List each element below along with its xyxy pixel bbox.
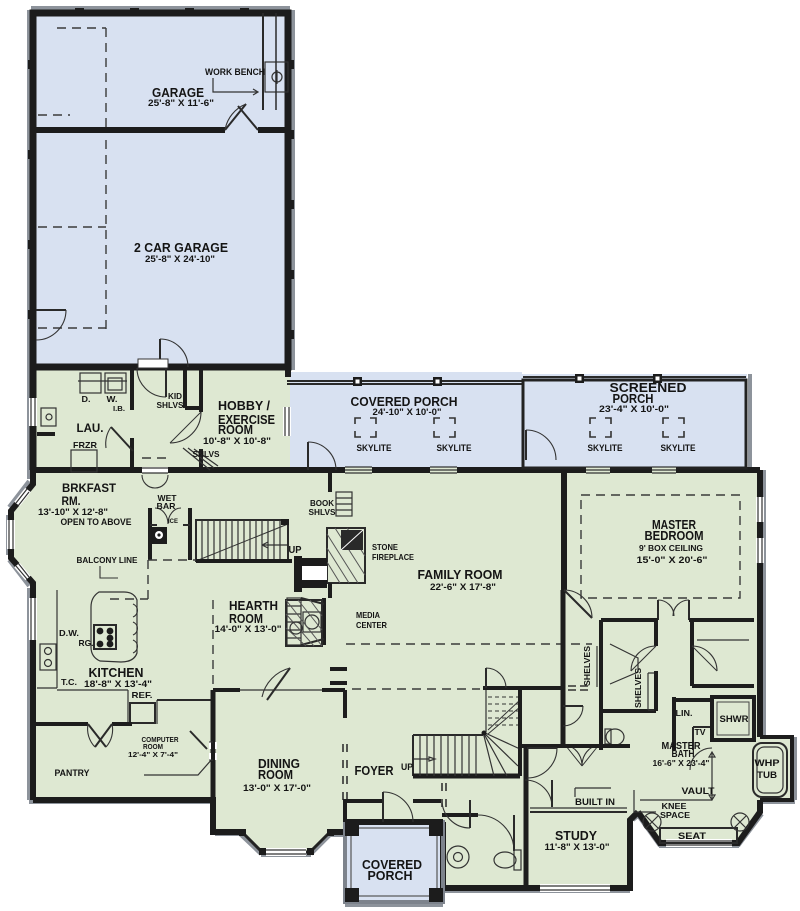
svg-text:OPEN TO ABOVE: OPEN TO ABOVE (61, 517, 132, 528)
svg-text:COMPUTER: COMPUTER (142, 737, 179, 744)
svg-text:KITCHEN: KITCHEN (89, 666, 144, 680)
svg-text:UP: UP (289, 545, 302, 556)
svg-text:LAU.: LAU. (77, 421, 104, 435)
svg-text:FAMILY ROOM: FAMILY ROOM (418, 568, 503, 582)
svg-text:ICE: ICE (168, 519, 178, 525)
svg-text:10'-8" X 10'-8": 10'-8" X 10'-8" (203, 436, 271, 447)
svg-text:D.: D. (82, 394, 91, 404)
svg-text:HEARTH: HEARTH (229, 599, 278, 613)
svg-text:SHLVS: SHLVS (309, 507, 336, 517)
svg-text:SHLVS: SHLVS (157, 400, 184, 410)
svg-text:SKYLITE: SKYLITE (661, 443, 696, 454)
svg-text:REF.: REF. (132, 690, 153, 700)
svg-text:TV: TV (695, 728, 707, 737)
svg-text:VAULT: VAULT (682, 786, 715, 797)
svg-text:CENTER: CENTER (356, 620, 387, 630)
svg-text:SHLVS: SHLVS (193, 449, 220, 459)
svg-text:LIN.: LIN. (676, 708, 693, 718)
svg-text:SHELVES: SHELVES (633, 668, 643, 708)
svg-text:11'-8" X 13'-0": 11'-8" X 13'-0" (545, 842, 610, 853)
svg-text:I.B.: I.B. (113, 406, 125, 413)
svg-text:13'-0" X 17'-0": 13'-0" X 17'-0" (243, 783, 311, 794)
svg-text:WHP: WHP (755, 758, 781, 769)
svg-text:SHWR: SHWR (720, 714, 749, 725)
svg-text:MEDIA: MEDIA (356, 610, 380, 620)
svg-text:12'-4" X 7'-4": 12'-4" X 7'-4" (128, 752, 178, 759)
svg-text:FRZR: FRZR (73, 440, 97, 450)
svg-text:SEAT: SEAT (678, 831, 706, 842)
svg-text:BATH: BATH (672, 749, 695, 760)
svg-text:BALCONY LINE: BALCONY LINE (77, 555, 138, 565)
svg-text:RM.: RM. (62, 494, 81, 508)
svg-text:18'-8" X 13'-4": 18'-8" X 13'-4" (84, 679, 152, 690)
svg-text:24'-10" X 10'-0": 24'-10" X 10'-0" (373, 407, 442, 418)
svg-text:HOBBY /: HOBBY / (218, 399, 271, 413)
svg-text:ROOM: ROOM (143, 744, 163, 751)
svg-text:2 CAR GARAGE: 2 CAR GARAGE (134, 241, 228, 255)
svg-text:PANTRY: PANTRY (55, 768, 91, 779)
svg-text:ROOM: ROOM (218, 423, 253, 437)
svg-text:SKYLITE: SKYLITE (437, 443, 472, 454)
svg-text:BUILT IN: BUILT IN (575, 797, 615, 808)
svg-text:WORK BENCH: WORK BENCH (205, 67, 265, 78)
svg-text:T.C.: T.C. (61, 677, 77, 687)
svg-text:SKYLITE: SKYLITE (357, 443, 392, 454)
svg-text:25'-8" X 24'-10": 25'-8" X 24'-10" (145, 254, 215, 265)
svg-text:D.W.: D.W. (59, 628, 79, 638)
svg-text:23'-4" X 10'-0": 23'-4" X 10'-0" (599, 404, 669, 415)
svg-text:UP: UP (401, 762, 413, 772)
svg-text:ROOM: ROOM (258, 768, 293, 782)
svg-text:25'-8" X 11'-6": 25'-8" X 11'-6" (148, 98, 214, 109)
svg-text:STONE: STONE (372, 542, 398, 552)
svg-text:PORCH: PORCH (368, 869, 413, 883)
svg-text:SPACE: SPACE (660, 810, 690, 820)
svg-text:BRKFAST: BRKFAST (62, 481, 117, 495)
svg-text:SKYLITE: SKYLITE (588, 443, 623, 454)
svg-text:FOYER: FOYER (355, 764, 394, 778)
svg-text:BEDROOM: BEDROOM (645, 529, 704, 543)
svg-text:TUB: TUB (757, 770, 777, 781)
svg-text:SHELVES: SHELVES (582, 646, 592, 686)
svg-text:22'-6" X 17'-8": 22'-6" X 17'-8" (430, 582, 496, 593)
svg-text:14'-0" X 13'-0": 14'-0" X 13'-0" (215, 624, 282, 635)
svg-text:RG.: RG. (79, 638, 94, 648)
svg-text:15'-0" X 20'-6": 15'-0" X 20'-6" (637, 555, 708, 566)
svg-text:BAR: BAR (157, 501, 176, 511)
svg-text:W.: W. (107, 394, 118, 404)
svg-text:STUDY: STUDY (555, 829, 598, 843)
svg-text:9' BOX CEILING: 9' BOX CEILING (639, 543, 703, 553)
svg-text:FIREPLACE: FIREPLACE (372, 552, 414, 562)
